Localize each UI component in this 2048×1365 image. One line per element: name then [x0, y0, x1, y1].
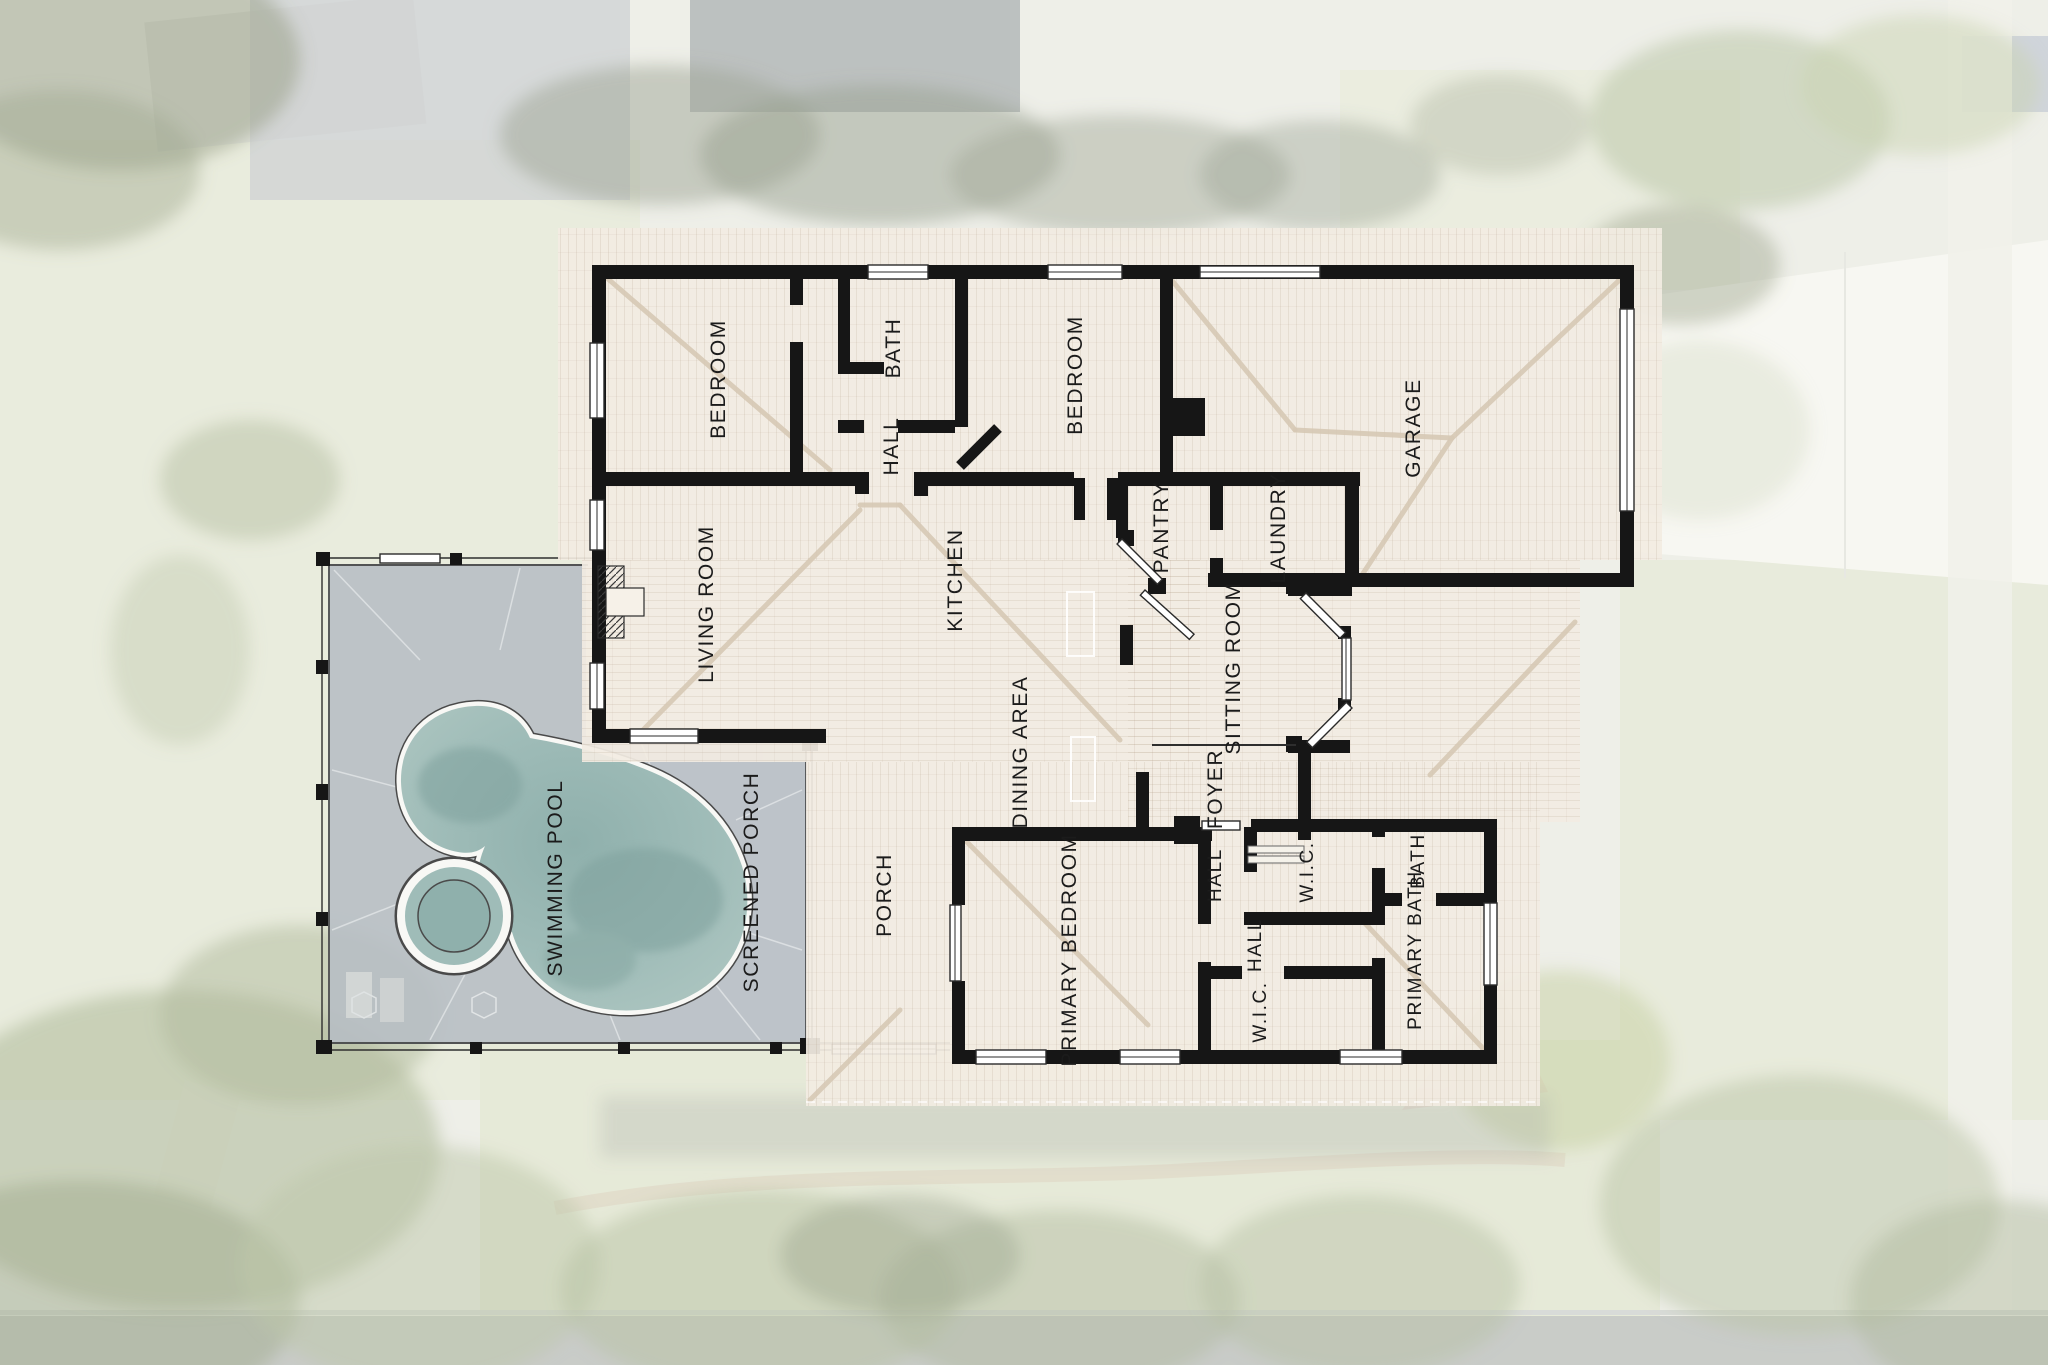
- room-label-primary-bath: PRIMARY BATH: [1405, 870, 1426, 1030]
- spa-tub: [418, 880, 490, 952]
- room-label-hall-mid: HALL: [1205, 848, 1226, 902]
- room-label-hall-lower: HALL: [1245, 918, 1266, 972]
- room-label-swimming-pool: SWIMMING POOL: [544, 780, 567, 977]
- room-label-hall-upper: HALL: [880, 417, 903, 476]
- room-label-foyer: FOYER: [1204, 749, 1227, 829]
- room-label-wic-upper: W.I.C.: [1297, 841, 1318, 902]
- room-label-screened-porch: SCREENED PORCH: [740, 772, 763, 993]
- scene-canvas: BEDROOM BATH HALL BEDROOM GARAGE LIVING …: [0, 0, 2048, 1365]
- room-label-sitting-room: SITTING ROOM: [1222, 581, 1245, 754]
- room-label-bedroom-mid: BEDROOM: [1064, 315, 1087, 435]
- room-label-dining-area: DINING AREA: [1009, 676, 1032, 829]
- room-label-wic-lower: W.I.C.: [1250, 981, 1271, 1042]
- aerial-floorplan-overlay: BEDROOM BATH HALL BEDROOM GARAGE LIVING …: [0, 0, 2048, 1365]
- room-label-porch: PORCH: [873, 853, 896, 937]
- room-label-living-room: LIVING ROOM: [695, 525, 718, 683]
- screen-window-top: [380, 554, 440, 563]
- room-label-bedroom-left: BEDROOM: [707, 319, 730, 439]
- room-label-garage: GARAGE: [1402, 378, 1425, 477]
- room-label-bath-upper: BATH: [882, 318, 905, 379]
- room-label-pantry: PANTRY: [1150, 481, 1173, 574]
- room-label-laundry: LAUNDRY: [1267, 472, 1290, 583]
- entry-steps: [1248, 846, 1304, 853]
- room-label-kitchen: KITCHEN: [944, 528, 967, 631]
- room-label-primary-bedroom: PRIMARY BEDROOM: [1058, 833, 1081, 1066]
